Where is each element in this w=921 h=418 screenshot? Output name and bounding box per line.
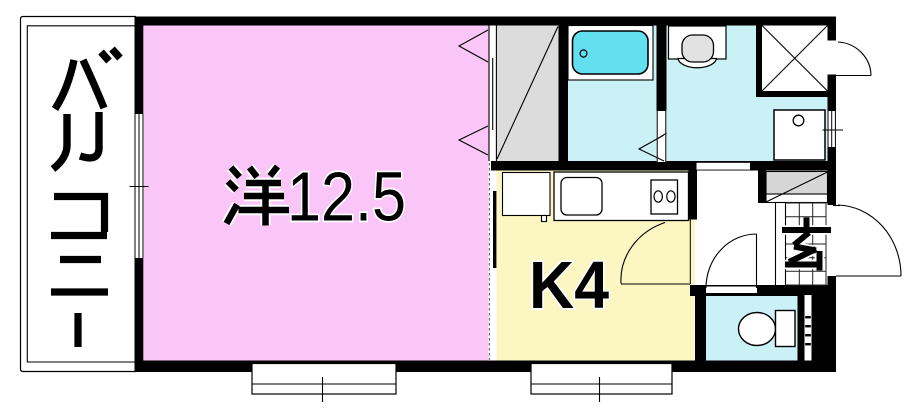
svg-text:K4: K4 (529, 248, 609, 323)
svg-text:12.5: 12.5 (287, 158, 406, 236)
